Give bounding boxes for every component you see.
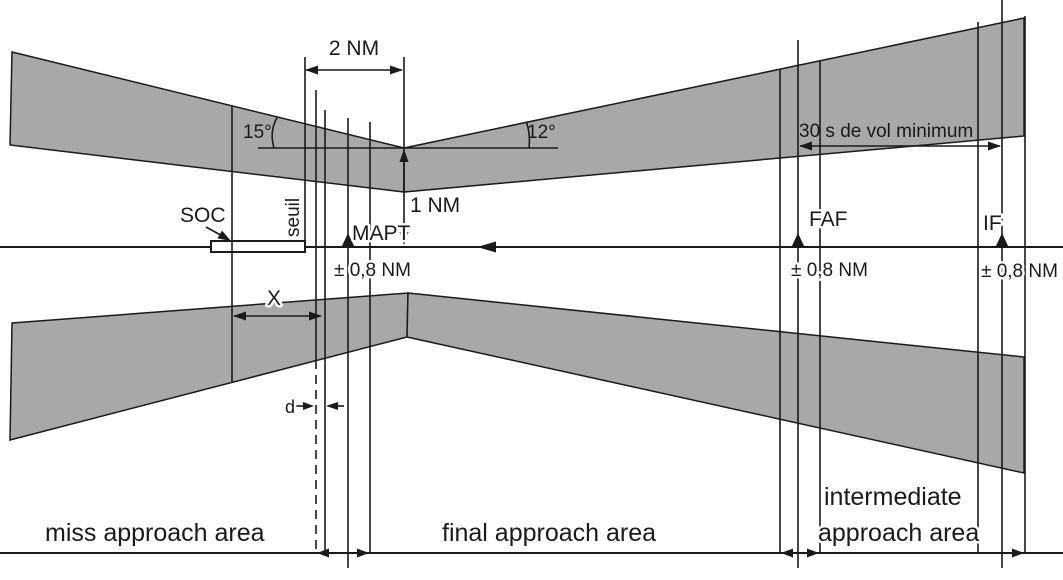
label-angle-12: 12°: [527, 122, 556, 143]
dim-d-left-arrow-icon: [326, 402, 338, 410]
soc-pointer-arrow-icon: [217, 231, 231, 241]
label-angle-15: 15°: [243, 122, 272, 143]
label-x: X: [267, 287, 281, 310]
dim-2nm-right-arrow-icon: [390, 66, 403, 75]
label-d: d: [285, 397, 295, 417]
label-1nm: 1 NM: [410, 194, 460, 217]
bottom-arrow-if-right-icon: [1012, 549, 1024, 558]
label-faf-tolerance: ± 0,8 NM: [791, 260, 868, 281]
label-faf: FAF: [809, 208, 848, 231]
label-final-approach-area: final approach area: [442, 519, 656, 547]
label-soc: SOC: [180, 204, 226, 227]
dim-2nm-left-arrow-icon: [305, 66, 318, 75]
label-if-tolerance: ± 0,8 NM: [981, 261, 1058, 282]
bottom-arrow-faf-right-icon: [807, 549, 819, 558]
diagram-canvas: 2 NM 1 NM 15° 12° SOC seuil MAPT ± 0,8 N…: [0, 0, 1063, 580]
label-intermediate-area-line1: intermediate: [824, 483, 962, 511]
label-mapt-tolerance: ± 0,8 NM: [334, 260, 411, 281]
approach-areas-diagram: 2 NM 1 NM 15° 12° SOC seuil MAPT ± 0,8 N…: [0, 0, 1063, 580]
runway-symbol: [211, 241, 305, 252]
label-2nm: 2 NM: [329, 37, 379, 60]
dim-d-right-arrow-icon: [303, 402, 314, 410]
faf-fix-marker-icon: [792, 233, 805, 247]
lower-intermediate-band: [407, 293, 1024, 473]
label-seuil: seuil: [283, 198, 304, 237]
label-intermediate-area-line2: approach area: [818, 519, 979, 547]
dim-30s-right-arrow-icon: [988, 142, 1001, 151]
label-30s: 30 s de vol minimum: [799, 121, 973, 142]
if-fix-marker-icon: [996, 233, 1009, 247]
bottom-arrow-faf-left-icon: [781, 549, 793, 558]
label-if: IF: [983, 212, 1002, 235]
upper-intermediate-band: [404, 18, 1024, 192]
bottom-arrow-mapt-right-icon: [357, 549, 369, 558]
upper-missed-approach-band: [10, 52, 404, 192]
label-mapt: MAPT: [352, 222, 411, 245]
label-miss-approach-area: miss approach area: [45, 519, 265, 547]
flight-direction-arrow-icon: [477, 242, 496, 253]
bottom-arrow-mapt-left-icon: [317, 549, 329, 558]
